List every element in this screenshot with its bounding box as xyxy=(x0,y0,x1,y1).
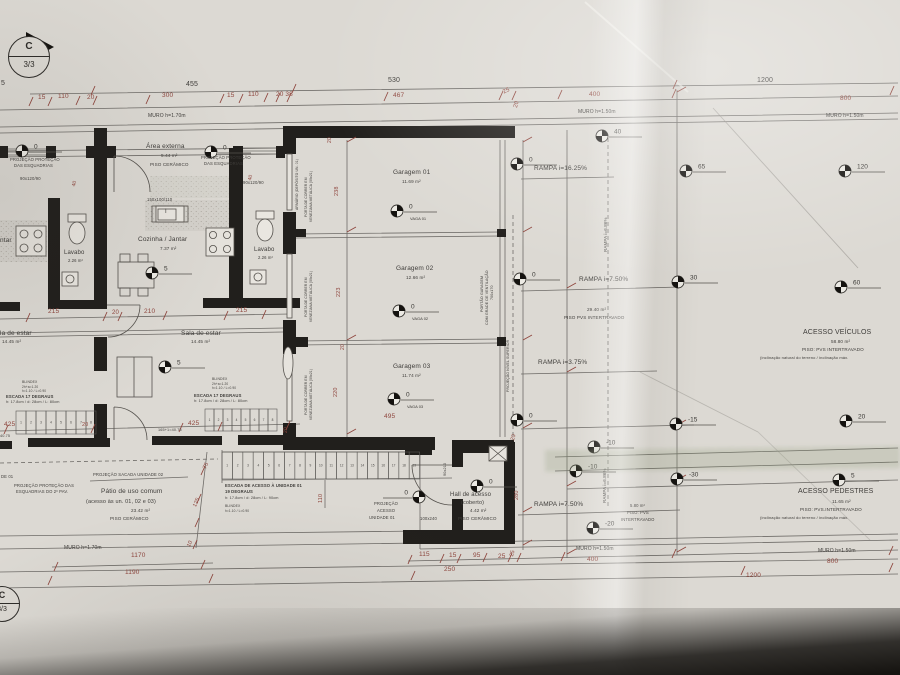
dim: 15 xyxy=(227,93,234,100)
stair-note: ESCADA 17 DEGRAUS xyxy=(6,395,54,399)
note: UNIDADE 01 xyxy=(369,516,395,520)
stair-note: ESCADA 17 DEGRAUS xyxy=(194,394,242,398)
section-divider xyxy=(0,603,19,604)
dim: 20 xyxy=(87,95,94,102)
section-number: 3/3 xyxy=(0,606,20,613)
floor-note: PISO: PVS.INTERTRAVADO xyxy=(800,508,862,513)
dim: 425 xyxy=(188,421,199,428)
room-area: 5.80 m² xyxy=(630,504,645,508)
stair-note: 19 DEGRAUS xyxy=(225,490,253,494)
note: PROJEÇÃO PROTEÇÃO xyxy=(10,158,60,162)
dim: 215 xyxy=(236,308,247,315)
dim: 800 xyxy=(840,96,851,103)
wall-note: MURO h=1.50m xyxy=(576,547,614,552)
note: PROJEÇÃO SACADA UNIDADE 02 xyxy=(93,473,163,477)
door-code: 90x210 xyxy=(444,463,448,476)
section-letter: C xyxy=(8,41,50,52)
dim: 1190 xyxy=(125,570,139,577)
window-code: 90x120/90 xyxy=(20,177,41,181)
dim: 425 xyxy=(4,422,15,429)
wall-note: MURO h=1.50m xyxy=(578,110,616,115)
room-hall: Hall de acesso xyxy=(450,492,491,498)
room-garagem-03: Garagem 03 xyxy=(393,364,430,371)
room-area: 29.40 m² xyxy=(587,308,606,313)
wall-note: MURO h=1.50m xyxy=(826,114,864,119)
door-note: PORTA DE CORRER EM xyxy=(305,277,308,317)
floor-note: PISO CERÂMICO xyxy=(150,163,189,168)
dim: 115 xyxy=(419,552,430,559)
ramp-label: RAMPA i=7.50% xyxy=(579,277,628,284)
dim: 400 xyxy=(587,557,598,564)
room-area: 2.26 m² xyxy=(258,256,273,260)
dim: 400 xyxy=(589,92,600,99)
stair-note: h: 17.8cm / d: 28cm / L: 80cm xyxy=(194,400,248,404)
dim: 20 xyxy=(328,137,333,143)
dim: 20 xyxy=(511,434,518,442)
dim: 110 xyxy=(58,94,69,101)
stair-note: h: 17.8cm / d: 28cm / L: 80cm xyxy=(6,401,60,405)
dim: 215 xyxy=(48,309,59,316)
door-code: 100x240 xyxy=(420,517,437,521)
wall-note: MURO h=1.50m xyxy=(818,549,856,554)
wall-note: MURO h=1.70m xyxy=(64,546,102,551)
ramp-label: RAMPA i=7.50% xyxy=(534,502,583,509)
zone-acesso-veiculos: ACESSO VEÍCULOS xyxy=(803,329,871,336)
door-note: VENEZIANA METÁLICA (09x21) xyxy=(310,171,313,222)
note: h=1.10 / L=0.90 xyxy=(225,510,249,513)
dim: 20 xyxy=(341,344,346,350)
floor-note: PISO: PVS INTERTRAVADO xyxy=(802,348,864,353)
room-sala: Sala de estar xyxy=(181,331,221,338)
section-number: 3/3 xyxy=(8,60,50,69)
room-area: 11.74 m² xyxy=(402,374,421,379)
note: DAS ESQUADRIAS xyxy=(204,162,243,166)
room-cozinha: Cozinha / Jantar xyxy=(138,237,187,244)
paper-sheet: 1234567812345678123456789101112131415161… xyxy=(0,0,900,675)
zone-acesso-pedestres: ACESSO PEDESTRES xyxy=(798,488,873,495)
room-lavabo: Lavabo xyxy=(254,247,274,253)
room-area: 12.66 m² xyxy=(406,276,425,281)
room-patio-sub: (acesso às un. 01, 02 e 03) xyxy=(86,500,156,506)
room-fragment: la de estar xyxy=(0,331,32,338)
room-hall-sub: (coberto) xyxy=(461,501,484,507)
note: h=1.10 / L=0.90 xyxy=(212,387,236,390)
section-marker-top: C 3/3 xyxy=(8,36,68,84)
dim: 495 xyxy=(384,414,395,421)
note: ACESSO xyxy=(377,509,395,513)
wall-note: MURO h=1.70m xyxy=(148,114,186,119)
dim: 110 xyxy=(248,92,259,99)
dim: 20 38 xyxy=(276,92,293,99)
floor-note: PISO PVS INTERTRAVADO xyxy=(564,316,624,321)
floor-note: PISO: PVS xyxy=(627,511,649,515)
window-code: 150x100/110 xyxy=(147,198,172,202)
room-area-externa: Área externa xyxy=(146,144,185,151)
dim: 1200 xyxy=(746,573,761,580)
room-area: 23.42 m² xyxy=(131,509,150,514)
dim: 75 xyxy=(203,462,211,470)
dim: 20 xyxy=(513,100,521,108)
floor-note: INTERTRAVADO xyxy=(621,518,655,522)
door-note: VENEZIANA METÁLICA (09x21) xyxy=(310,271,313,322)
room-area: 11.69 m² xyxy=(402,180,421,185)
floor-note: PISO CERÂMICO xyxy=(110,517,149,522)
dim-total-530: 530 xyxy=(388,77,400,84)
dim: 95 xyxy=(473,553,480,560)
labels-layer: 455530120015110203001511020 384672520400… xyxy=(0,0,900,675)
room-area: 7.37 m² xyxy=(160,247,176,252)
dim: 250 xyxy=(444,567,455,574)
note: BLINDEX xyxy=(225,505,240,508)
gate-note: 700x170 xyxy=(491,285,495,300)
dim: 300 xyxy=(162,93,173,100)
floor-plan-photo: 1234567812345678123456789101112131415161… xyxy=(0,0,900,675)
room-area: 5.44 m² xyxy=(161,154,177,159)
note: BLINDEX xyxy=(22,381,37,384)
room-garagem-02: Garagem 02 xyxy=(396,266,433,273)
room-garagem-01: Garagem 01 xyxy=(393,170,430,177)
note: PROJEÇÃO PROTEÇÃO xyxy=(201,156,251,160)
section-divider xyxy=(9,56,49,57)
window-code: 90x120/90 xyxy=(243,181,264,185)
door-note: PORTA DE CORRER EM xyxy=(305,375,308,415)
stair-note: h: 17.8cm / d: 28cm / L: 90cm xyxy=(225,497,279,501)
ramp-label: RAMPA i=6.86% xyxy=(603,468,608,503)
note: h=1.10 / L=0.90 xyxy=(22,390,46,393)
dim: 238 xyxy=(335,186,341,196)
dim: 40 xyxy=(72,180,78,187)
room-area: 14.45 m² xyxy=(191,340,210,345)
stair-note: ESCADA DE ACESSO À UNIDADE 01 xyxy=(225,484,302,488)
note: ESQUADRIAS DO 2º PAV. xyxy=(16,490,68,494)
dim: 25 xyxy=(510,550,517,558)
dim-fragment: 5 xyxy=(1,80,5,87)
section-letter: C xyxy=(0,590,20,600)
dim: 210 xyxy=(144,309,155,316)
room-area: 2.26 m² xyxy=(68,259,83,263)
note: 165+1=40.75 xyxy=(158,429,182,433)
dim: 125 xyxy=(193,497,202,508)
dim: 15 xyxy=(449,553,456,560)
door-note: VENEZIANA METÁLICA (09x21) xyxy=(310,369,313,420)
dim: 220 xyxy=(334,387,340,397)
dim-total-1200: 1200 xyxy=(757,77,773,84)
door-note: PORTA DE CORRER EM xyxy=(305,177,308,217)
note: PROJEÇÃO NÍVEL SUPERIOR xyxy=(507,340,511,392)
note: DAS ESQUADRIAS xyxy=(14,164,53,168)
dim: 800 xyxy=(827,559,838,566)
room-area: 4.42 m² xyxy=(470,509,486,514)
dim-total-455: 455 xyxy=(186,81,198,88)
dim: 110 xyxy=(319,494,325,503)
dim: 20 xyxy=(284,427,289,433)
dim: 15 xyxy=(38,95,45,102)
window-tag: I xyxy=(165,209,167,215)
room-area: 58.80 m² xyxy=(831,340,850,345)
section-marker-bottom: C 3/3 xyxy=(0,586,34,626)
floor-note: PISO CERÂMICO xyxy=(458,517,497,522)
dim: 1170 xyxy=(131,553,145,560)
room-area: 14.45 m² xyxy=(2,340,21,345)
note-fragment: DE 01 xyxy=(1,475,13,479)
dim: 20 xyxy=(112,310,119,316)
dim: 20 xyxy=(82,423,88,429)
note: (inclinação natural do terreno / inclina… xyxy=(760,356,848,360)
ramp-label: RAMPA i=16.25% xyxy=(534,166,587,173)
note: ARMÁRIO (DEPÓSITO UN. 01) xyxy=(296,159,299,210)
dim: 25 xyxy=(498,554,505,561)
note: (inclinação natural do terreno / inclina… xyxy=(760,516,848,520)
room-patio: Pátio de uso comum xyxy=(101,489,162,496)
note: BLINDEX xyxy=(212,378,227,381)
room-lavabo: Lavabo xyxy=(64,250,84,256)
room-area: 11.65 m² xyxy=(832,500,851,505)
dim: 467 xyxy=(393,93,404,100)
note: 40.75 xyxy=(0,435,10,439)
note: PROJEÇÃO PROTEÇÃO DAS xyxy=(14,484,74,488)
dim: 223 xyxy=(337,287,343,297)
dim: 10 xyxy=(187,540,195,548)
ramp-label: RAMPA i=3.75% xyxy=(538,360,587,367)
dim: 25 xyxy=(502,87,511,95)
ramp-label: RAMPA i=6.86% xyxy=(604,217,609,252)
note: PROJEÇÃO xyxy=(374,502,398,506)
dim: 280 xyxy=(515,490,521,500)
room-fragment: ntar xyxy=(0,238,12,245)
